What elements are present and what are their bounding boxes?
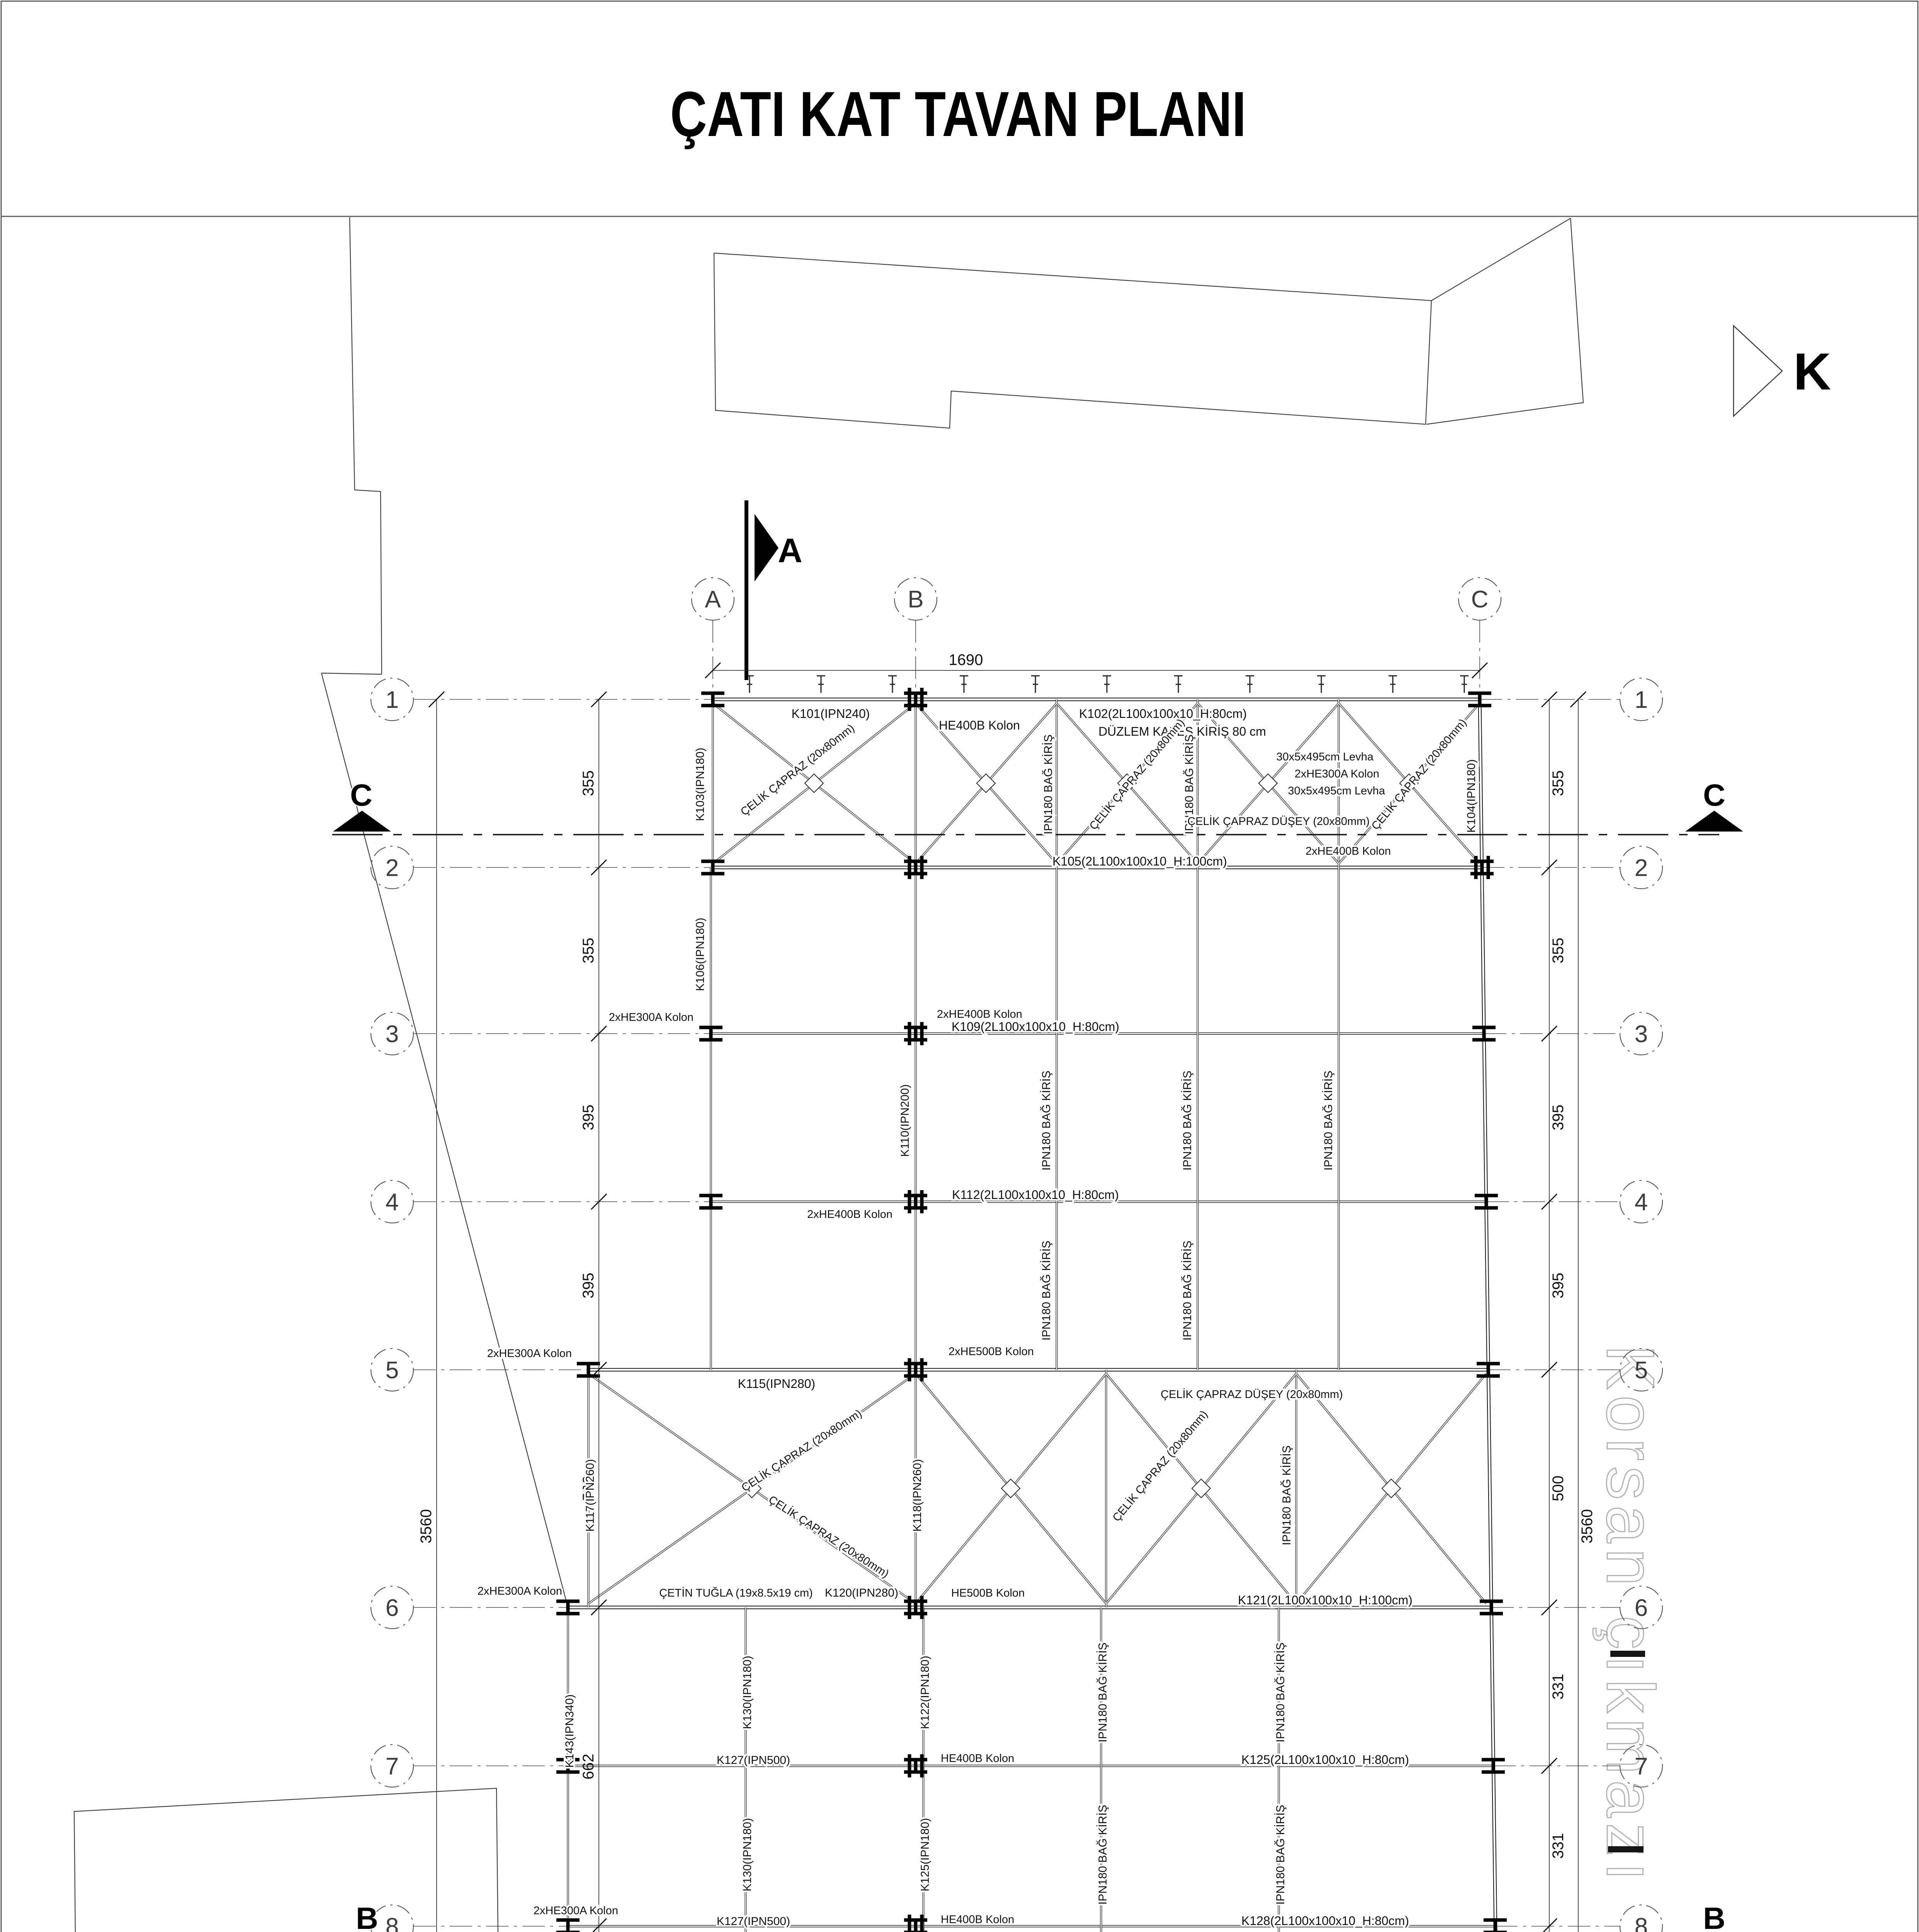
annotation-label: HE400B Kolon [941, 1752, 1014, 1765]
roof-ceiling-plan-svg: ÇATI KAT TAVAN PLANI K Korsan çıkmazı [0, 0, 1919, 1932]
dimension-value: 395 [1550, 1273, 1567, 1299]
annotation-label: K117(IPN260) [584, 1459, 597, 1532]
annotation-label: 2xHE300A Kolon [609, 1011, 693, 1024]
grid-bubble: B [894, 578, 937, 620]
dimension-value: 500 [1550, 1476, 1567, 1502]
grid-bubble-label: B [908, 586, 923, 613]
grid-bubble: A [692, 578, 734, 620]
dimension-value: 331 [1550, 1674, 1567, 1700]
purlin-hangers [583, 676, 1496, 1932]
grid-bubble-label: 2 [1635, 855, 1648, 881]
annotation-label: IPN180 BAĞ KİRİŞ [1280, 1446, 1293, 1545]
annotation-label: IPN180 BAĞ KİRİŞ [1040, 1241, 1053, 1340]
grid-bubble: 3 [1620, 1012, 1662, 1055]
annotation-label: ÇETİN TUĞLA (19x8.5x19 cm) [659, 1587, 813, 1599]
grid-bubble-label: A [705, 586, 721, 613]
dimension-value: 3560 [418, 1509, 435, 1544]
annotation-label: K105(2L100x100x10_H:100cm) [1052, 854, 1227, 868]
annotation-label: K104(IPN180) [1465, 759, 1478, 833]
section-letter: B [356, 1901, 378, 1932]
dimension-value: 1690 [949, 651, 983, 668]
grid-bubble-label: 4 [386, 1189, 399, 1216]
dimension-value: 355 [580, 770, 597, 796]
annotation-label: IPN180 BAĞ KİRİŞ [1040, 1071, 1053, 1170]
annotation-label: ÇELİK ÇAPRAZ DÜŞEY (20x80mm) [1161, 1388, 1343, 1401]
annotation-label: 2xHE400B Kolon [937, 1008, 1022, 1020]
annotation-label: K122(IPN180) [919, 1656, 931, 1729]
annotation-label: IPN180 BAĞ KİRİŞ [1042, 735, 1055, 834]
street-watermark: Korsan çıkmazı [1593, 1345, 1668, 1886]
grid-bubble-label: C [1471, 586, 1489, 613]
structure-linework [556, 676, 1513, 1932]
annotation-label: HE500B Kolon [951, 1587, 1025, 1599]
annotation-label: IPN180 BAĞ KİRİŞ [1274, 1805, 1287, 1905]
street-text-bar [1608, 1846, 1644, 1852]
annotation-label: K110(IPN200) [899, 1084, 911, 1157]
grid-bubble-label: 8 [1635, 1913, 1648, 1932]
annotation-label: K130(IPN180) [741, 1818, 754, 1891]
annotation-label: K128(2L100x100x10_H:80cm) [1241, 1914, 1409, 1928]
grid-bubble: C [1458, 578, 1501, 620]
column-symbols [556, 688, 1513, 1932]
section-markers [332, 500, 1743, 1932]
grid-bubble: 4 [371, 1180, 413, 1223]
annotations: K101(IPN240)K102(2L100x100x10_H:80cm)DÜZ… [350, 531, 1725, 1932]
grid-bubble-label: 7 [386, 1753, 399, 1780]
north-label: K [1793, 342, 1831, 401]
grid-bubble-label: 1 [386, 687, 399, 713]
north-arrow-icon: K [1734, 326, 1831, 416]
grid-bubble-label: 1 [1635, 687, 1648, 713]
annotation-label: K127(IPN500) [717, 1915, 790, 1928]
dimension-value: 3560 [1579, 1509, 1596, 1544]
section-letter: B [1703, 1901, 1725, 1932]
annotation-label: IPN180 BAĞ KİRİŞ [1181, 1241, 1194, 1340]
annotation-label: ÇELİK ÇAPRAZ (20x80mm) [766, 1493, 891, 1580]
annotation-label: ÇELİK ÇAPRAZ (20x80mm) [1110, 1408, 1210, 1524]
section-c-arrow-left [333, 811, 391, 832]
annotation-label: 2xHE300A Kolon [534, 1905, 618, 1917]
annotation-label: IPN180 BAĞ KİRİŞ [1322, 1071, 1335, 1170]
dimension-chains: 355355395395500662299,5299,5299,53560355… [418, 651, 1596, 1932]
street-name-text: Korsan çıkmazı [1593, 1345, 1668, 1886]
annotation-label: 2xHE300A Kolon [1295, 768, 1379, 780]
annotation-label: 2xHE300A Kolon [478, 1585, 562, 1597]
annotation-label: K125(IPN180) [919, 1818, 931, 1891]
page-title: ÇATI KAT TAVAN PLANI [670, 78, 1246, 150]
dimension-value: 395 [580, 1273, 597, 1299]
grid-bubble: 1 [1620, 678, 1662, 721]
annotation-label: K125(2L100x100x10_H:80cm) [1241, 1753, 1409, 1767]
annotation-label: K127(IPN500) [717, 1754, 790, 1767]
street-text-bar [1610, 1651, 1645, 1657]
annotation-label: K103(IPN180) [694, 748, 707, 821]
annotation-label: IPN180 BAĞ KİRİŞ [1096, 1805, 1109, 1905]
annotation-label: K121(2L100x100x10_H:100cm) [1238, 1593, 1412, 1607]
grid-bubble: 6 [371, 1586, 413, 1629]
annotation-label: ÇELİK ÇAPRAZ DÜŞEY (20x80mm) [1187, 815, 1370, 828]
annotation-label: K120(IPN280) [825, 1587, 898, 1599]
grid-bubble-label: 5 [1635, 1357, 1648, 1384]
annotation-label: 2xHE400B Kolon [1305, 845, 1391, 857]
drawing-sheet: ÇATI KAT TAVAN PLANI K Korsan çıkmazı [0, 0, 1919, 1932]
annotation-label: K102(2L100x100x10_H:80cm) [1079, 707, 1247, 721]
annotation-label: IPN180 BAĞ KİRİŞ [1096, 1643, 1109, 1742]
grid-bubble: 8 [1620, 1905, 1662, 1932]
annotation-label: IPN180 BAĞ KİRİŞ [1181, 1071, 1194, 1170]
grid-bubble: 3 [371, 1012, 413, 1055]
annotation-label: 2xHE500B Kolon [948, 1345, 1034, 1358]
annotation-label: 2xHE300A Kolon [487, 1347, 572, 1360]
annotation-label: HE400B Kolon [941, 1913, 1014, 1926]
dimension-value: 331 [1550, 1833, 1567, 1859]
grid-bubble-label: 4 [1635, 1189, 1648, 1216]
grid-bubble: 4 [1620, 1180, 1662, 1223]
dimension-value: 355 [1550, 938, 1567, 964]
grid-bubble-label: 3 [1635, 1021, 1648, 1048]
grid-bubble-label: 5 [386, 1357, 399, 1384]
grid-bubble-label: 6 [1635, 1595, 1648, 1621]
annotation-label: K130(IPN180) [741, 1656, 754, 1729]
annotation-label: ÇELİK ÇAPRAZ (20x80mm) [1369, 716, 1469, 832]
annotation-label: K143(IPN340) [563, 1694, 576, 1768]
dimension-value: 395 [1550, 1105, 1567, 1131]
dimension-value: 355 [580, 938, 597, 964]
parcel-boundaries [74, 217, 1583, 1932]
section-letter: A [778, 531, 802, 570]
grid-bubble-label: 3 [386, 1021, 399, 1048]
grid-bubble: 5 [371, 1349, 413, 1391]
annotation-label: K118(IPN260) [911, 1459, 924, 1532]
section-a-arrow-top [755, 514, 778, 582]
annotation-label: 30x5x495cm Levha [1277, 751, 1374, 763]
grid-bubble-label: 2 [386, 855, 399, 881]
annotation-label: ÇELİK ÇAPRAZ (20x80mm) [739, 1407, 864, 1494]
dimension-value: 662 [580, 1754, 597, 1780]
annotation-label: 30x5x495cm Levha [1288, 785, 1385, 797]
grid-bubble: 2 [1620, 846, 1662, 889]
grid-bubble: 7 [371, 1745, 413, 1787]
annotation-label: K112(2L100x100x10_H:80cm) [952, 1188, 1119, 1202]
section-letter: C [1703, 778, 1725, 812]
grid-bubble-label: 6 [386, 1595, 399, 1621]
grid-bubble: 2 [371, 846, 413, 889]
grid-bubble: 1 [371, 678, 413, 721]
annotation-label: 2xHE400B Kolon [807, 1208, 892, 1221]
annotation-label: K106(IPN180) [694, 918, 707, 991]
annotation-label: K109(2L100x100x10_H:80cm) [952, 1020, 1119, 1034]
grid-bubble-label: 7 [1635, 1753, 1648, 1780]
section-letter: C [350, 778, 372, 812]
dimension-value: 395 [580, 1105, 597, 1131]
annotation-label: HE400B Kolon [939, 718, 1020, 732]
annotation-label: K115(IPN280) [738, 1377, 815, 1391]
section-c-arrow-right [1685, 811, 1743, 832]
annotation-label: K101(IPN240) [792, 707, 870, 721]
dimension-value: 355 [1550, 770, 1567, 796]
grid-bubble-label: 8 [386, 1913, 399, 1932]
annotation-label: IPN180 BAĞ KİRİŞ [1274, 1643, 1287, 1742]
